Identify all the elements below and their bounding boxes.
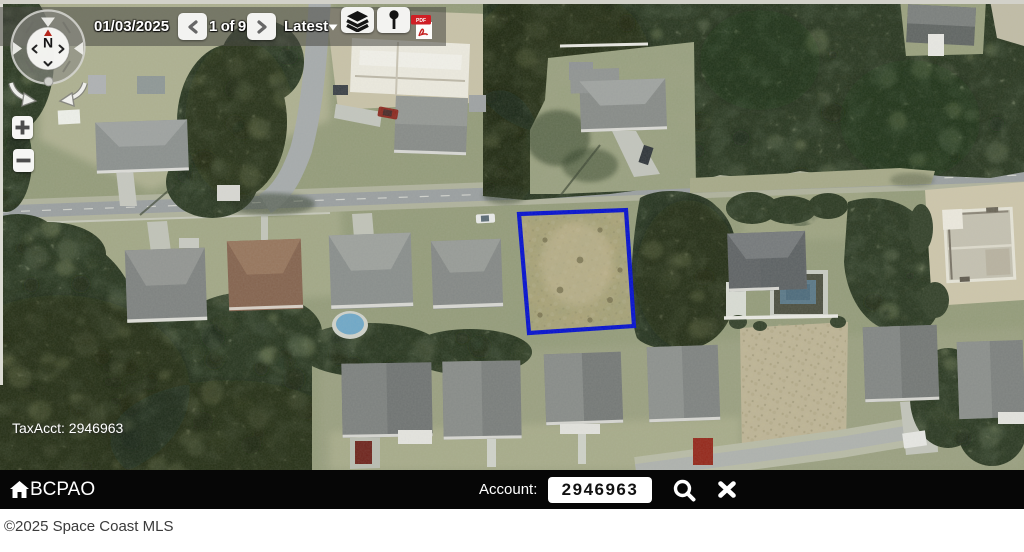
svg-text:PDF: PDF: [416, 18, 426, 24]
svg-text:N: N: [43, 35, 53, 51]
